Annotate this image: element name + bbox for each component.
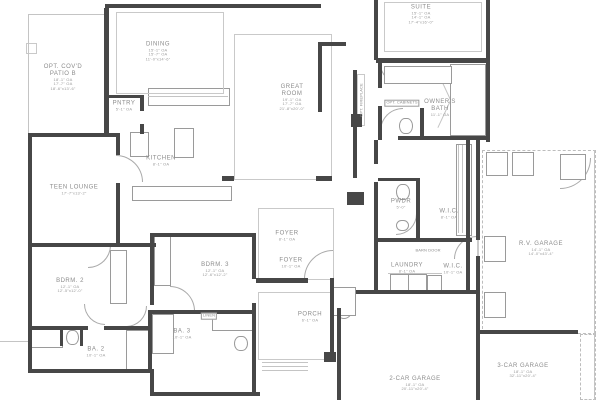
fixture-utility-cabinet	[332, 287, 356, 316]
floor-plan: OPT. COV'D PATIO B 18'-1" OA 17'-7" OA 1…	[0, 0, 600, 400]
wall-segment	[222, 176, 234, 181]
wall-segment	[104, 8, 109, 133]
wall-segment	[330, 278, 334, 358]
room-label-dining: DINING 15'-1" OA 15'-7" OA 11'-0"x14'-6"	[146, 42, 171, 63]
thin-line	[594, 150, 595, 400]
wall-segment	[318, 42, 346, 46]
wall-segment	[416, 178, 420, 238]
wall-segment	[337, 308, 341, 400]
wall-segment	[106, 95, 144, 98]
room-label-ba2: BA. 2 10'-1" OA	[87, 346, 106, 357]
room-label-great-room: GREAT ROOM 19'-1" OA 17'-7" OA 21'-8"x20…	[280, 84, 305, 112]
room-label-2-car-garage: 2-CAR GARAGE 18'-1" OA 20'-11"x20'-4"	[389, 376, 440, 392]
wall-segment	[378, 106, 382, 140]
wall-segment	[252, 303, 256, 396]
thin-line	[0, 341, 28, 342]
wall-segment	[318, 42, 322, 112]
ceiling-line	[258, 208, 334, 280]
wall-segment	[347, 192, 364, 205]
room-label-foyer-lower: FOYER 10'-1" OA	[279, 257, 302, 268]
door-swing-arc	[116, 155, 143, 182]
wall-segment	[374, 0, 378, 60]
thin-line	[462, 145, 463, 233]
wall-segment	[476, 256, 480, 400]
room-label-ba3: BA. 3 10'-1" OA	[173, 328, 192, 339]
wall-segment	[150, 392, 260, 396]
room-label-suite: SUITE 15'-1" OA 14'-1" OA 17'-4"x16'-0"	[409, 5, 434, 26]
ceiling-line	[258, 292, 334, 360]
room-label-foyer-upper: FOYER 8'-1" OA	[275, 230, 298, 241]
fixture-bath3-tub	[212, 312, 254, 331]
fixture-bath2-tub	[31, 328, 63, 348]
wall-segment	[374, 238, 472, 242]
thin-line	[458, 145, 459, 233]
label-linen: LINEN	[201, 313, 217, 320]
room-label-laundry: LAUNDRY 8'-1" OA	[391, 262, 423, 273]
wall-segment	[252, 233, 256, 279]
wall-segment	[353, 128, 357, 178]
wall-segment	[28, 243, 156, 247]
room-label-kitchen: KITCHEN 8'-1" OA	[146, 155, 176, 166]
fixture-bath2-vanity	[126, 330, 150, 372]
room-label-patio: OPT. COV'D PATIO B 18'-1" OA 17'-7" OA 1…	[44, 64, 82, 92]
wall-segment	[356, 290, 480, 294]
wall-segment	[256, 278, 308, 283]
door-swing-arc	[126, 306, 147, 327]
thin-line	[262, 362, 308, 363]
wall-segment	[316, 176, 332, 181]
thin-line	[262, 366, 308, 367]
wall-segment	[486, 62, 490, 142]
door-swing-arc	[84, 304, 105, 325]
room-label-rv-garage: R.V. GARAGE 14'-1" OA 14'-0"x43'-4"	[519, 241, 563, 257]
room-label-bdrm3: BDRM. 3 12'-1" OA 12'-6"x12'-2"	[201, 262, 229, 278]
wall-segment	[28, 369, 152, 373]
fixture-oven-cabinet	[174, 128, 194, 158]
room-label-bdrm2: BDRM. 2 12'-1" OA 12'-5"x12'-0"	[56, 278, 84, 294]
wall-segment	[374, 140, 378, 164]
fixture-kitchen-counter	[132, 186, 232, 201]
room-label-porch: PORCH 6'-1" OA	[298, 311, 322, 322]
wall-segment	[376, 58, 488, 63]
wall-segment	[150, 233, 256, 237]
wall-segment	[378, 178, 420, 181]
wall-segment	[148, 310, 152, 370]
thin-line	[28, 14, 29, 133]
wall-segment	[374, 182, 378, 292]
fixture-range-cabinet	[130, 132, 149, 157]
room-label-teen-lounge: TEEN LOUNGE 17'-7"x13'-2"	[50, 184, 99, 195]
wall-segment	[104, 326, 152, 330]
wall-segment	[476, 140, 480, 240]
fixture-closet-bdrm3	[154, 236, 171, 286]
room-label-3-car-garage: 3-CAR GARAGE 18'-1" OA 32'-11"x20'-4"	[497, 363, 548, 379]
fixture-closet-bdrm2	[110, 250, 127, 304]
door-swing-arc	[88, 245, 111, 268]
fixture-bath3-vanity	[152, 314, 174, 354]
wall-segment	[28, 133, 32, 373]
wall-segment	[378, 62, 382, 88]
thin-line	[262, 370, 308, 371]
wall-segment	[28, 133, 120, 137]
wall-segment	[140, 124, 144, 134]
wall-segment	[105, 4, 321, 8]
room-label-wic-lower: W.I.C. 10'-1" OA	[443, 263, 462, 274]
thin-line	[28, 14, 106, 15]
wall-segment	[116, 137, 120, 155]
wall-segment	[466, 140, 470, 292]
fixture-toilet	[399, 118, 413, 134]
wall-segment	[480, 330, 578, 334]
label-opt-fireplace: OPT. FIREPLACE	[360, 83, 365, 117]
wall-segment	[353, 70, 357, 128]
wall-segment	[116, 183, 120, 245]
fixture-owners-vanity	[384, 66, 452, 84]
fixture-toilet	[66, 330, 79, 345]
fixture-toilet	[234, 336, 248, 351]
wall-segment	[28, 326, 88, 330]
room-label-pwdr: PWDR 5'-0"	[391, 198, 411, 209]
room-label-wic-upper: W.I.C. 8'-1" OA	[439, 208, 458, 219]
thin-line	[148, 96, 228, 97]
room-label-pantry: PNTRY 5'-1" OA	[113, 100, 136, 111]
label-barn-door: BARN DOOR	[415, 249, 440, 254]
window-marker	[476, 240, 480, 256]
label-opt-cabinets: OPT. CABINETS	[384, 100, 419, 107]
wall-segment	[486, 0, 490, 64]
door-swing-arc	[170, 286, 195, 311]
fixture-sink-oval	[396, 220, 409, 231]
room-label-owners-bath: OWNER'S BATH 11'-1" OA	[424, 99, 456, 117]
